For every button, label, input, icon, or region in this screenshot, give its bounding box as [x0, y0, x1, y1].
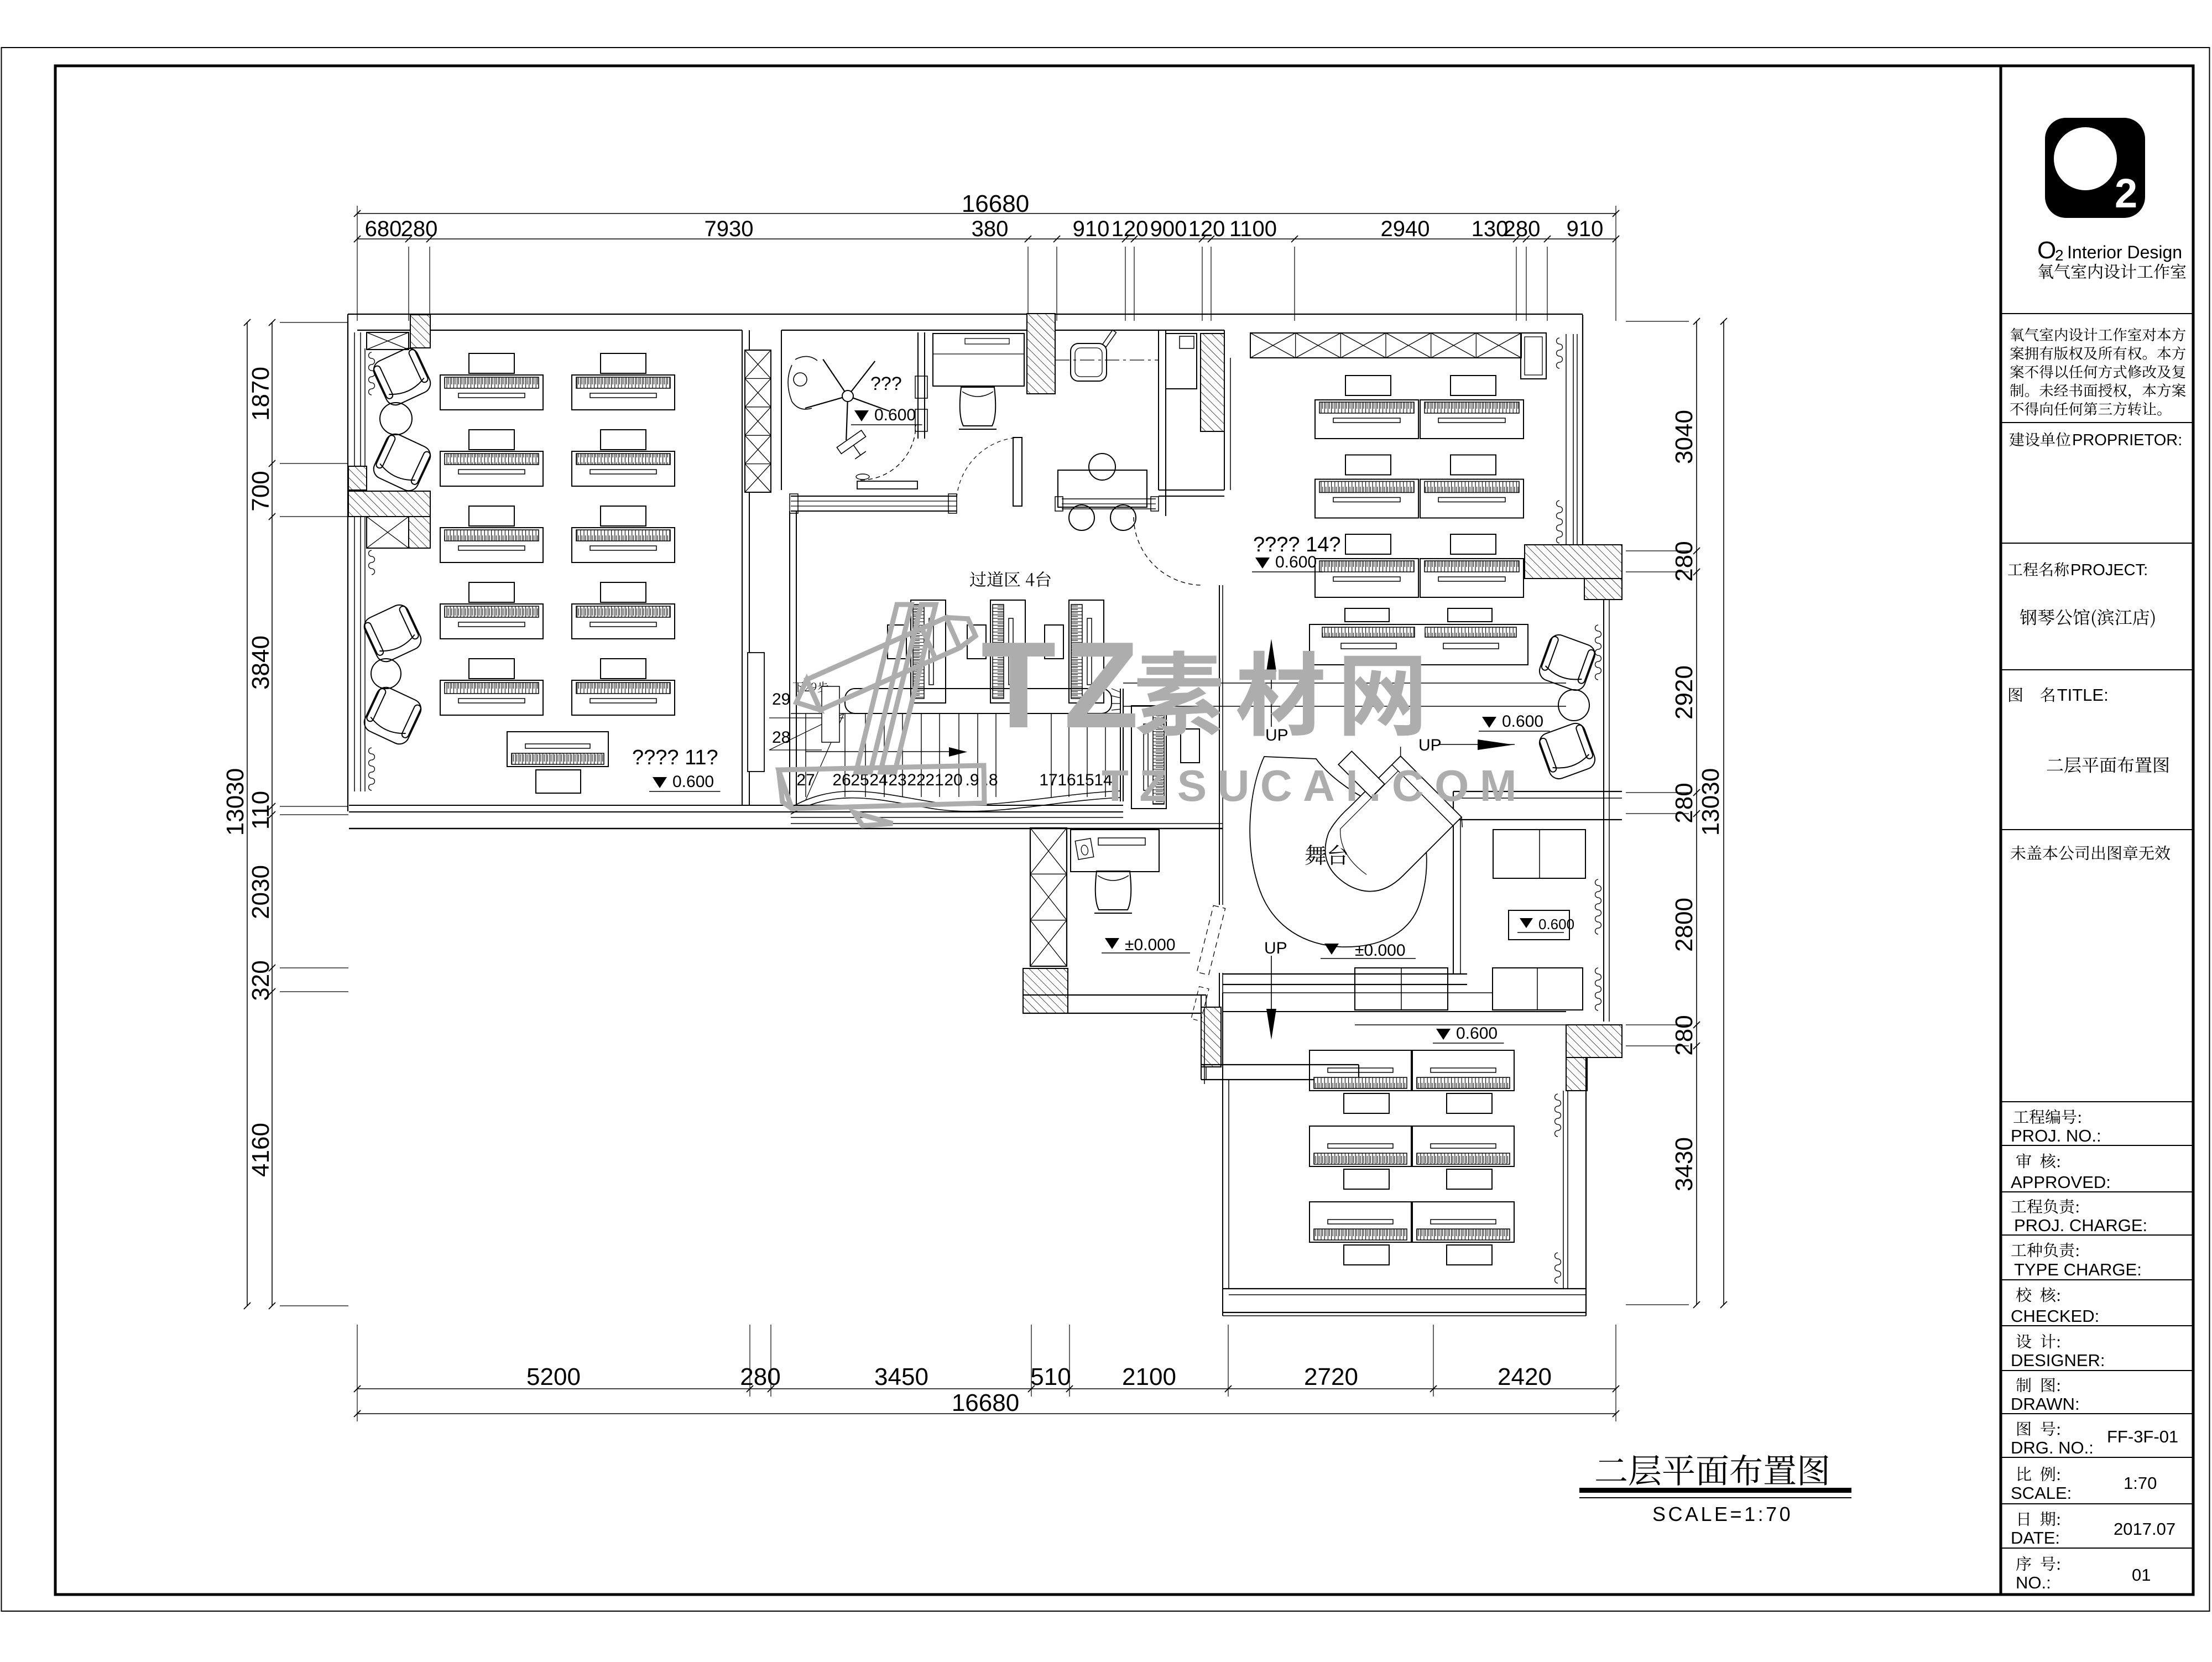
svg-text:15: 15: [1076, 771, 1094, 789]
svg-text:01: 01: [2132, 1565, 2151, 1585]
svg-text:910: 910: [1567, 217, 1604, 241]
svg-text:22: 22: [907, 771, 925, 789]
svg-text:DATE:: DATE:: [2011, 1528, 2060, 1548]
svg-text:1870: 1870: [247, 367, 274, 421]
svg-text:.9: .9: [965, 771, 979, 789]
svg-text:28: 28: [772, 728, 790, 747]
svg-text:2: 2: [2055, 247, 2064, 264]
svg-text:2920: 2920: [1671, 665, 1698, 720]
svg-text:APPROVED:: APPROVED:: [2011, 1173, 2111, 1192]
svg-text:TYPE CHARGE:: TYPE CHARGE:: [2014, 1260, 2142, 1279]
svg-text:DRAWN:: DRAWN:: [2011, 1394, 2080, 1414]
svg-text:UP: UP: [1265, 726, 1288, 744]
svg-text:110: 110: [247, 791, 274, 830]
svg-text:2030: 2030: [247, 865, 274, 919]
svg-text:380: 380: [972, 217, 1009, 241]
svg-text:21: 21: [925, 771, 943, 789]
svg-text:280: 280: [1671, 1015, 1698, 1055]
svg-text:TITLE:: TITLE:: [2057, 685, 2109, 705]
svg-text:±0.000: ±0.000: [1125, 936, 1176, 954]
svg-text:Interior Design: Interior Design: [2067, 242, 2182, 262]
svg-text:910: 910: [1073, 217, 1110, 241]
svg-text:16: 16: [1057, 771, 1076, 789]
svg-text:4160: 4160: [247, 1123, 274, 1177]
svg-text:0.600: 0.600: [1275, 553, 1317, 571]
svg-text:TZSUCAI.COM: TZSUCAI.COM: [1102, 761, 1527, 810]
svg-text:0.600: 0.600: [1538, 916, 1574, 932]
svg-text:1100: 1100: [1229, 217, 1277, 241]
svg-text:CHECKED:: CHECKED:: [2011, 1306, 2099, 1326]
svg-text:UP: UP: [1264, 939, 1287, 957]
svg-text:3450: 3450: [874, 1363, 928, 1390]
svg-text:3040: 3040: [1671, 410, 1698, 464]
svg-text:PROPRIETOR:: PROPRIETOR:: [2072, 431, 2182, 449]
svg-text:5200: 5200: [526, 1363, 581, 1390]
svg-text:27: 27: [796, 771, 815, 789]
svg-text:280: 280: [401, 217, 438, 241]
svg-text:13030: 13030: [1697, 768, 1724, 836]
svg-text:3430: 3430: [1671, 1137, 1698, 1191]
svg-text:0.600: 0.600: [1456, 1024, 1498, 1043]
svg-text:UP: UP: [1418, 736, 1442, 754]
svg-text:2420: 2420: [1498, 1363, 1552, 1390]
svg-text:DESIGNER:: DESIGNER:: [2011, 1351, 2105, 1370]
svg-text:280: 280: [1671, 783, 1698, 823]
svg-text:17: 17: [1039, 771, 1057, 789]
svg-text:2800: 2800: [1671, 898, 1698, 952]
svg-text:???: ???: [870, 373, 902, 394]
svg-text:130: 130: [1472, 217, 1509, 241]
svg-text:0.600: 0.600: [1502, 712, 1543, 731]
svg-text:TZ: TZ: [981, 617, 1146, 754]
svg-text:7930: 7930: [705, 217, 754, 241]
svg-text:2720: 2720: [1304, 1363, 1358, 1390]
svg-text:280: 280: [740, 1363, 780, 1390]
svg-text:SCALE:: SCALE:: [2011, 1483, 2072, 1503]
svg-text:680: 680: [365, 217, 402, 241]
svg-text:FF-3F-01: FF-3F-01: [2107, 1427, 2178, 1446]
svg-text:NO.:: NO.:: [2016, 1573, 2051, 1592]
svg-text:???? 11?: ???? 11?: [632, 746, 718, 769]
svg-text:13030: 13030: [222, 768, 249, 836]
svg-text:0.600: 0.600: [672, 773, 714, 791]
svg-text:280: 280: [1504, 217, 1541, 241]
svg-text:16680: 16680: [962, 190, 1029, 217]
svg-text:PROJ. NO.:: PROJ. NO.:: [2011, 1126, 2101, 1145]
svg-text:900: 900: [1150, 217, 1187, 241]
svg-text:280: 280: [1671, 541, 1698, 581]
svg-text:±0.000: ±0.000: [1355, 941, 1406, 960]
svg-text:29: 29: [772, 690, 790, 708]
svg-text:O: O: [2037, 237, 2056, 264]
svg-text:2940: 2940: [1381, 217, 1430, 241]
svg-text:120: 120: [1188, 217, 1225, 241]
svg-text:0.600: 0.600: [874, 406, 916, 424]
svg-text:PROJ. CHARGE:: PROJ. CHARGE:: [2014, 1216, 2147, 1235]
svg-text:PROJECT:: PROJECT:: [2070, 561, 2148, 579]
svg-text:2: 2: [2115, 170, 2137, 216]
svg-text:700: 700: [247, 471, 274, 511]
svg-text:SCALE=1:70: SCALE=1:70: [1652, 1503, 1793, 1525]
svg-text:320: 320: [247, 960, 274, 1001]
svg-text:1:70: 1:70: [2124, 1473, 2157, 1493]
svg-text:26: 26: [832, 771, 851, 789]
svg-text:2017.07: 2017.07: [2114, 1519, 2176, 1539]
svg-text:20: 20: [944, 771, 962, 789]
svg-text:510: 510: [1030, 1363, 1071, 1390]
svg-text:3840: 3840: [247, 635, 274, 690]
svg-text:2100: 2100: [1122, 1363, 1176, 1390]
svg-text:16680: 16680: [952, 1389, 1019, 1416]
svg-text:DRG. NO.:: DRG. NO.:: [2011, 1438, 2094, 1457]
svg-text:120: 120: [1112, 217, 1149, 241]
